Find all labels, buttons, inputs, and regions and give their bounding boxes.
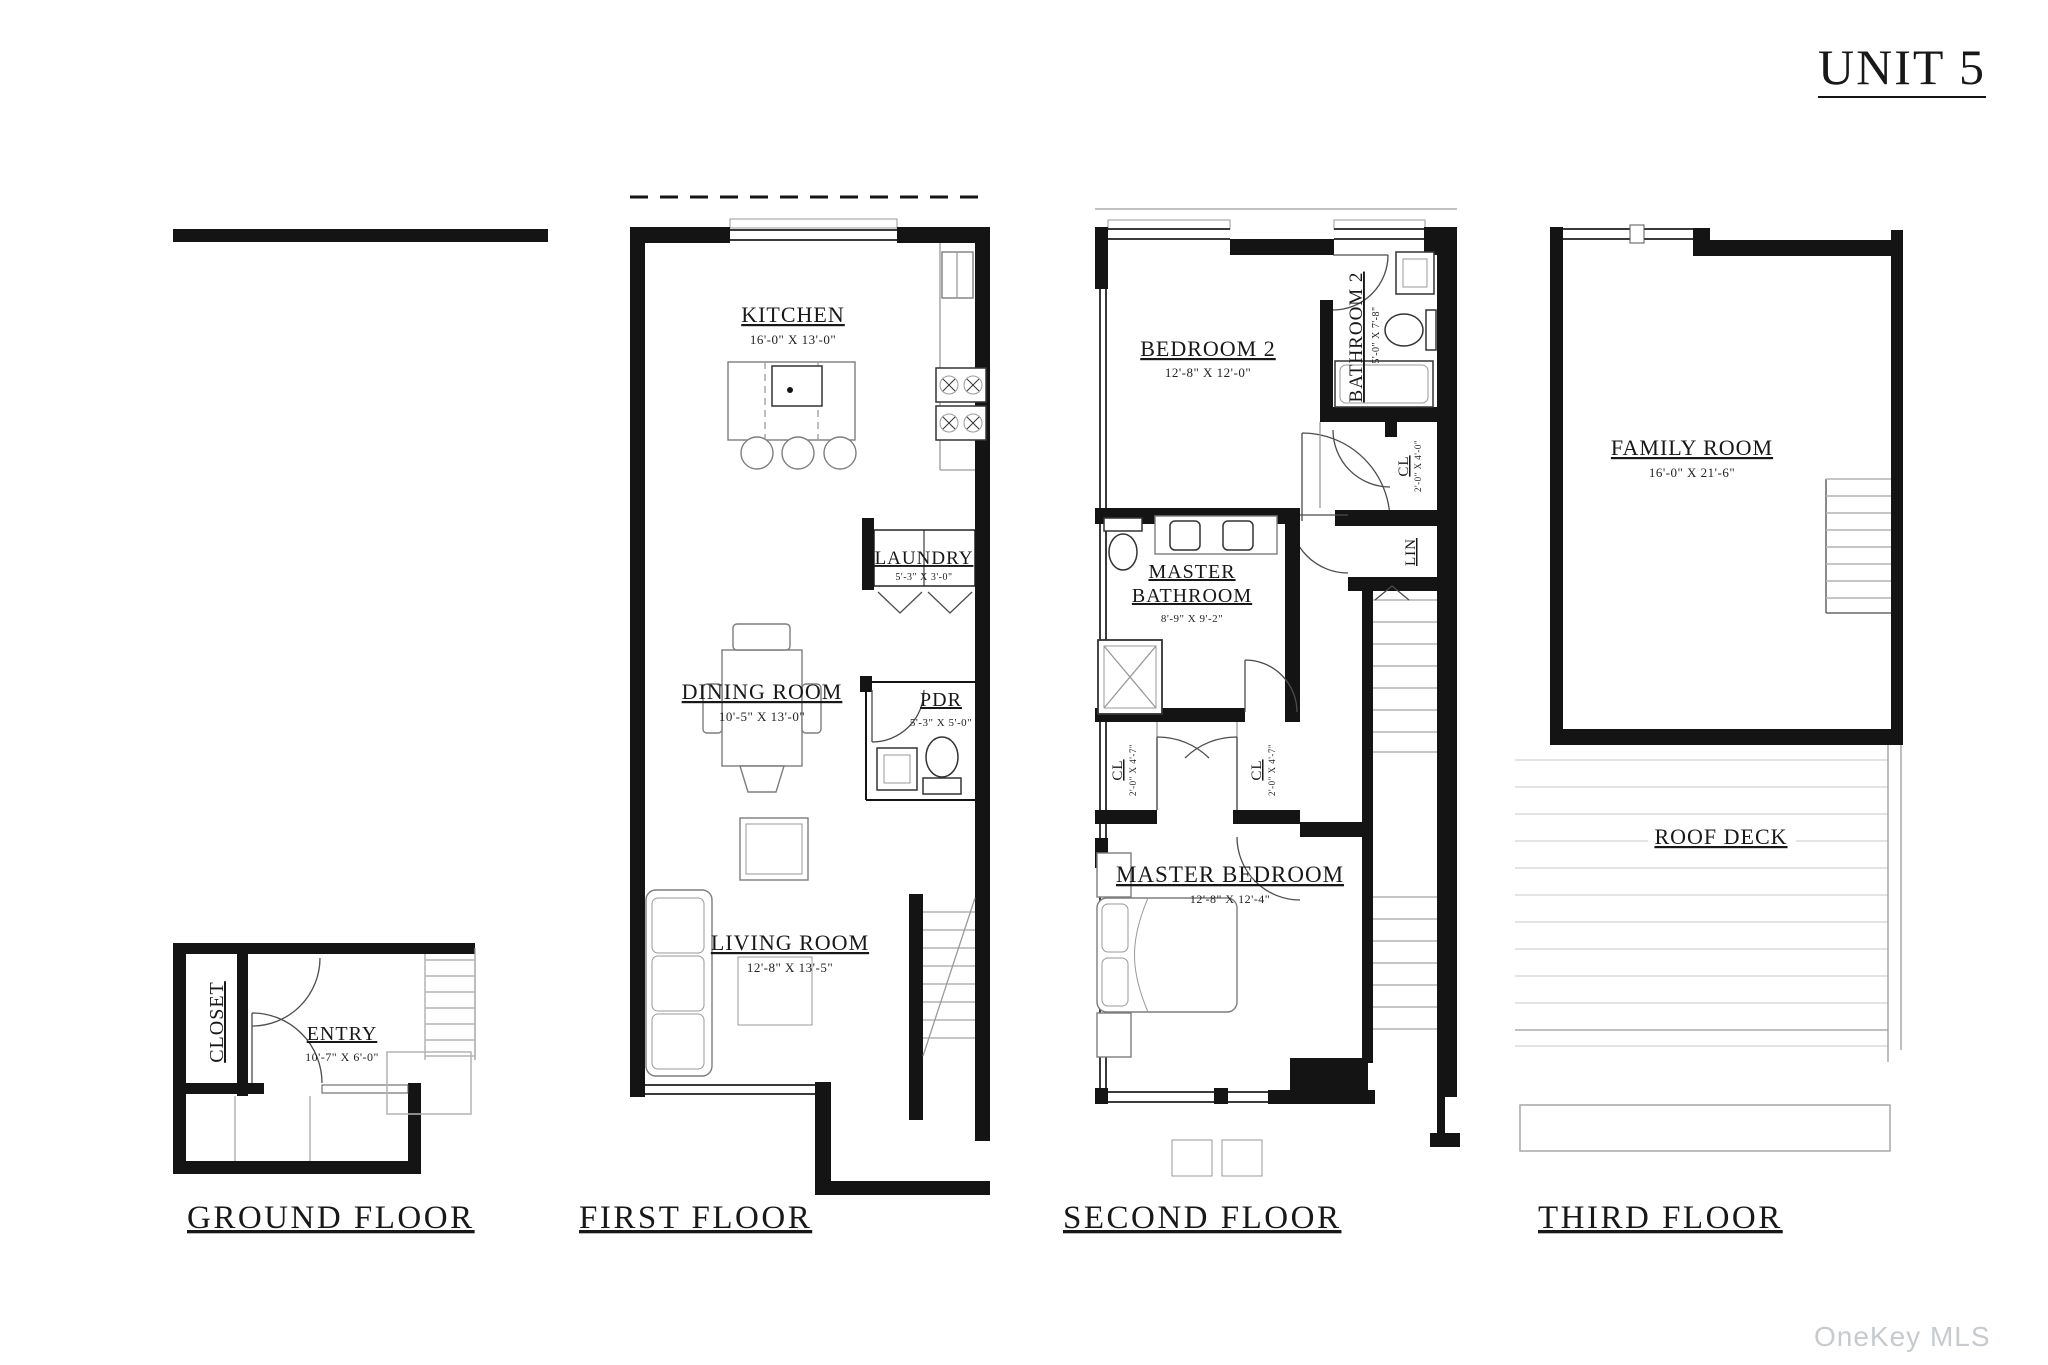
wall — [1430, 1133, 1460, 1147]
unit-title: UNIT 5 — [1818, 39, 1986, 95]
linen-closet — [1290, 510, 1457, 591]
wall — [1385, 422, 1397, 437]
sink-vanity — [1396, 252, 1434, 294]
wall — [186, 1083, 264, 1094]
stair-wall — [909, 894, 923, 1120]
window-sill — [730, 219, 897, 228]
first-floor-stairs — [909, 894, 975, 1120]
floor-label-second: SECOND FLOOR — [1063, 1200, 1341, 1236]
sink-vanity — [877, 748, 917, 790]
watermark: OneKey MLS — [1814, 1321, 1991, 1352]
room-label-pdr: PDR — [920, 689, 962, 711]
exterior-unit — [1172, 1140, 1212, 1176]
wall — [1550, 227, 1563, 745]
room-dims-laundry: 5'-3" X 3'-0" — [895, 572, 952, 583]
planter — [1520, 1105, 1890, 1151]
room-label-dining: DINING ROOM — [682, 679, 843, 704]
window — [730, 230, 897, 240]
sofa — [646, 890, 712, 1076]
wall — [630, 227, 645, 1097]
wall — [1693, 240, 1891, 256]
step-lines — [235, 1096, 310, 1161]
deck-railing — [1888, 745, 1901, 1062]
toilet-tank — [1104, 518, 1142, 531]
pdr-door-arc — [872, 690, 924, 742]
wall — [975, 227, 990, 1141]
bed — [1097, 898, 1237, 1012]
first-floor-plan: KITCHEN 16'-0" X 13'-0" LAUNDRY 5'-3" X … — [579, 197, 990, 1236]
wall — [1320, 300, 1333, 422]
room-label-closet: CLOSET — [206, 981, 228, 1063]
wall — [1230, 239, 1334, 255]
bedroom2-closet — [1302, 422, 1397, 521]
second-floor-stairs — [1362, 578, 1437, 1063]
media-console — [740, 818, 808, 880]
toilet — [926, 737, 958, 777]
room-dims-entry: 10'-7" X 6'-0" — [305, 1050, 379, 1064]
stairs-down — [1373, 897, 1437, 1029]
toilet — [1109, 534, 1137, 570]
window-sill — [1334, 220, 1425, 229]
deck-boards — [1515, 760, 1888, 1003]
wall — [862, 518, 874, 590]
room-dims-bedroom2: 12'-8" X 12'-0" — [1165, 365, 1251, 380]
wall — [1550, 729, 1903, 745]
room-dims-bathroom2: 5'-0" X 7'-8" — [1371, 306, 1382, 363]
stool — [741, 437, 773, 469]
room-label-master-bathroom-2: BATHROOM — [1132, 585, 1252, 607]
wall — [1268, 1090, 1375, 1104]
room-dims-cl-left: 2'-0" X 4'-7" — [1128, 744, 1138, 796]
wall — [173, 229, 548, 242]
wall — [1300, 822, 1367, 837]
stair-diagonal — [923, 898, 975, 1056]
room-label-kitchen: KITCHEN — [741, 302, 845, 327]
entry-window — [322, 1085, 408, 1093]
third-floor-plan: FAMILY ROOM 16'-0" X 21'-6" ROOF DECK TH… — [1515, 225, 1903, 1236]
wall — [815, 1181, 990, 1195]
wall-opening — [1445, 1097, 1457, 1133]
wall — [173, 943, 475, 954]
sink-basin — [1223, 521, 1253, 550]
roof-deck-area — [1515, 745, 1901, 1151]
room-label-bedroom2: BEDROOM 2 — [1140, 336, 1276, 361]
room-label-bathroom2: BATHROOM 2 — [1346, 272, 1367, 403]
exterior-unit — [1222, 1140, 1262, 1176]
wall — [173, 1161, 421, 1174]
floor-label-ground: GROUND FLOOR — [187, 1200, 475, 1236]
room-label-master-bedroom: MASTER BEDROOM — [1116, 862, 1344, 887]
wall — [1891, 230, 1903, 745]
second-floor-plan: BEDROOM 2 12'-8" X 12'-0" BATHROOM 2 5'-… — [1063, 209, 1460, 1236]
room-label-family-room: FAMILY ROOM — [1611, 435, 1773, 460]
wall — [1335, 510, 1348, 526]
master-bedroom-furniture — [1097, 822, 1367, 1057]
floor-plan-sheet: UNIT 5 CLOSET ENTRY 10'-7" X 6'-0" GROUN… — [0, 0, 2048, 1365]
wall — [815, 1082, 831, 1195]
stool — [782, 437, 814, 469]
floor-label-third: THIRD FLOOR — [1538, 1200, 1783, 1236]
sink-basin — [1170, 521, 1200, 550]
wall — [860, 676, 872, 692]
wall — [1214, 1088, 1228, 1104]
window-sill — [1108, 220, 1230, 229]
closet-door-arc — [1185, 737, 1237, 758]
dining-table — [722, 650, 802, 766]
wall — [173, 943, 186, 1174]
nightstand — [1097, 1013, 1131, 1057]
window — [1553, 229, 1693, 239]
sheet-title: UNIT 5 — [1818, 39, 1986, 97]
kitchen-fixtures — [728, 243, 986, 470]
wall — [1437, 227, 1457, 1147]
wall — [1290, 1058, 1368, 1091]
toilet-tank — [1426, 310, 1436, 350]
room-dims-kitchen: 16'-0" X 13'-0" — [750, 332, 836, 347]
wall — [1095, 1088, 1108, 1104]
room-dims-family-room: 16'-0" X 21'-6" — [1649, 465, 1735, 480]
wall — [630, 1082, 645, 1097]
room-label-entry: ENTRY — [307, 1023, 378, 1045]
wall — [1333, 407, 1437, 422]
room-label-cl: CL — [1396, 455, 1412, 476]
kitchen-sink — [772, 366, 822, 406]
room-dims-cl: 2'-0" X 4'-0" — [1413, 440, 1423, 492]
closet-door-arc — [252, 958, 320, 1026]
chair — [740, 766, 784, 792]
room-label-laundry: LAUNDRY — [875, 548, 974, 569]
room-label-living: LIVING ROOM — [711, 930, 869, 955]
closet-partition-wall — [237, 954, 248, 1096]
stairs — [425, 954, 475, 1060]
stair-wall — [1362, 578, 1373, 1063]
third-floor-stairs — [1826, 479, 1891, 613]
room-label-cl-left: CL — [1110, 759, 1126, 780]
faucet — [787, 387, 793, 393]
bedroom2-door-arc — [1302, 433, 1390, 521]
chair — [733, 624, 790, 650]
toilet — [1385, 314, 1423, 346]
stair-landing — [387, 1052, 471, 1114]
room-label-lin: LIN — [1403, 538, 1419, 566]
room-dims-master-bedroom: 12'-8" X 12'-4" — [1190, 892, 1270, 906]
range — [936, 406, 986, 440]
ground-floor-plan: CLOSET ENTRY 10'-7" X 6'-0" GROUND FLOOR — [173, 229, 548, 1236]
room-dims-cl-right: 2'-0" X 4'-7" — [1267, 744, 1277, 796]
stool — [824, 437, 856, 469]
closet-door-arc — [1157, 737, 1209, 758]
wall — [1348, 510, 1457, 526]
stairs — [1826, 479, 1891, 598]
room-dims-dining: 10'-5" X 13'-0" — [719, 709, 805, 724]
window — [645, 1085, 815, 1094]
room-label-master-bathroom-1: MASTER — [1148, 561, 1235, 583]
dining-furniture — [703, 624, 821, 792]
room-dims-master-bathroom: 8'-9" X 9'-2" — [1161, 613, 1223, 625]
closet-partition-lines — [1157, 722, 1237, 810]
room-label-cl-right: CL — [1249, 759, 1265, 780]
stairs-up — [1373, 600, 1437, 752]
wall — [1233, 810, 1300, 824]
wall — [1095, 227, 1108, 289]
room-dims-living: 12'-8" X 13'-5" — [747, 960, 833, 975]
toilet-tank — [923, 778, 961, 794]
room-label-roof-deck: ROOF DECK — [1654, 824, 1787, 849]
room-dims-pdr: 5'-3" X 5'-0" — [910, 717, 972, 729]
wall — [408, 1083, 421, 1174]
wall — [1693, 228, 1710, 240]
closet-door-arc — [1333, 430, 1390, 487]
window — [1108, 1092, 1268, 1102]
floor-plan-drawing: UNIT 5 CLOSET ENTRY 10'-7" X 6'-0" GROUN… — [0, 0, 2048, 1365]
range — [936, 368, 986, 402]
bifold-door-chevrons — [878, 592, 972, 613]
window-mullion — [1630, 225, 1644, 243]
wall — [1095, 810, 1157, 824]
floor-label-first: FIRST FLOOR — [579, 1200, 812, 1236]
window — [1108, 229, 1424, 239]
